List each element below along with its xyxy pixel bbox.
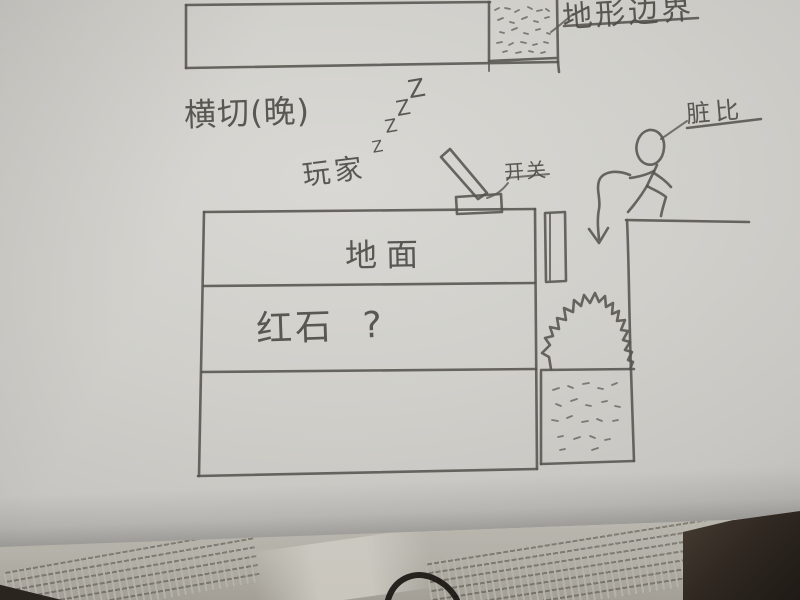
- handwritten-labels: 地形边界 横切(晚) 玩家 Z Z Z Z 开关 脏比 地面 红石 ?: [0, 0, 800, 600]
- ground-layer-label: 地面: [345, 229, 428, 276]
- photo-of-sketch: 地形边界 横切(晚) 玩家 Z Z Z Z 开关 脏比 地面 红石 ?: [0, 0, 800, 600]
- snore-z-2: Z: [383, 115, 399, 138]
- terrain-label: 地形边界: [561, 0, 696, 37]
- switch-label: 开关: [503, 154, 549, 186]
- snore-z-4: Z: [406, 73, 428, 105]
- snore-z-1: Z: [370, 136, 384, 157]
- player-label: 玩家: [300, 146, 368, 194]
- cross-section-label: 横切(晚): [183, 86, 311, 136]
- figure-label: 脏比: [685, 90, 746, 130]
- redstone-layer-label: 红石 ?: [255, 296, 385, 352]
